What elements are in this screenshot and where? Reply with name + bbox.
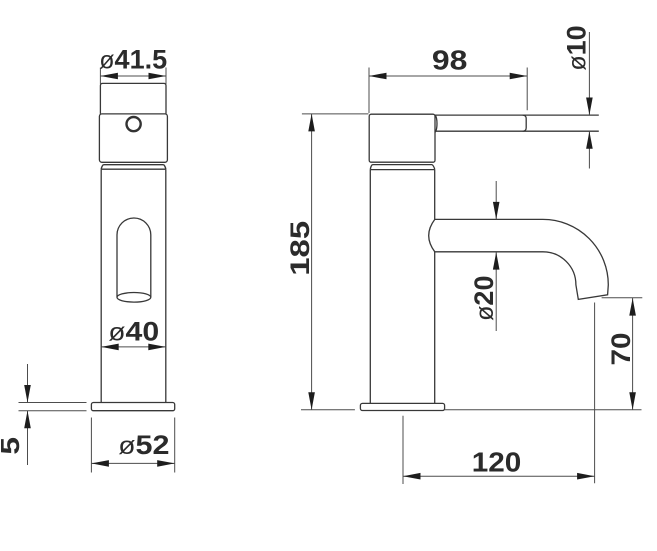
svg-text:185: 185 [286,221,316,276]
svg-text:ø20: ø20 [469,276,499,321]
svg-text:5: 5 [0,437,25,455]
svg-text:70: 70 [606,332,636,365]
svg-text:120: 120 [472,448,522,479]
svg-text:98: 98 [432,45,467,75]
svg-text:ø41.5: ø41.5 [99,44,167,74]
svg-text:ø52: ø52 [118,430,169,460]
svg-text:ø10: ø10 [562,25,592,70]
svg-text:ø40: ø40 [108,317,159,347]
